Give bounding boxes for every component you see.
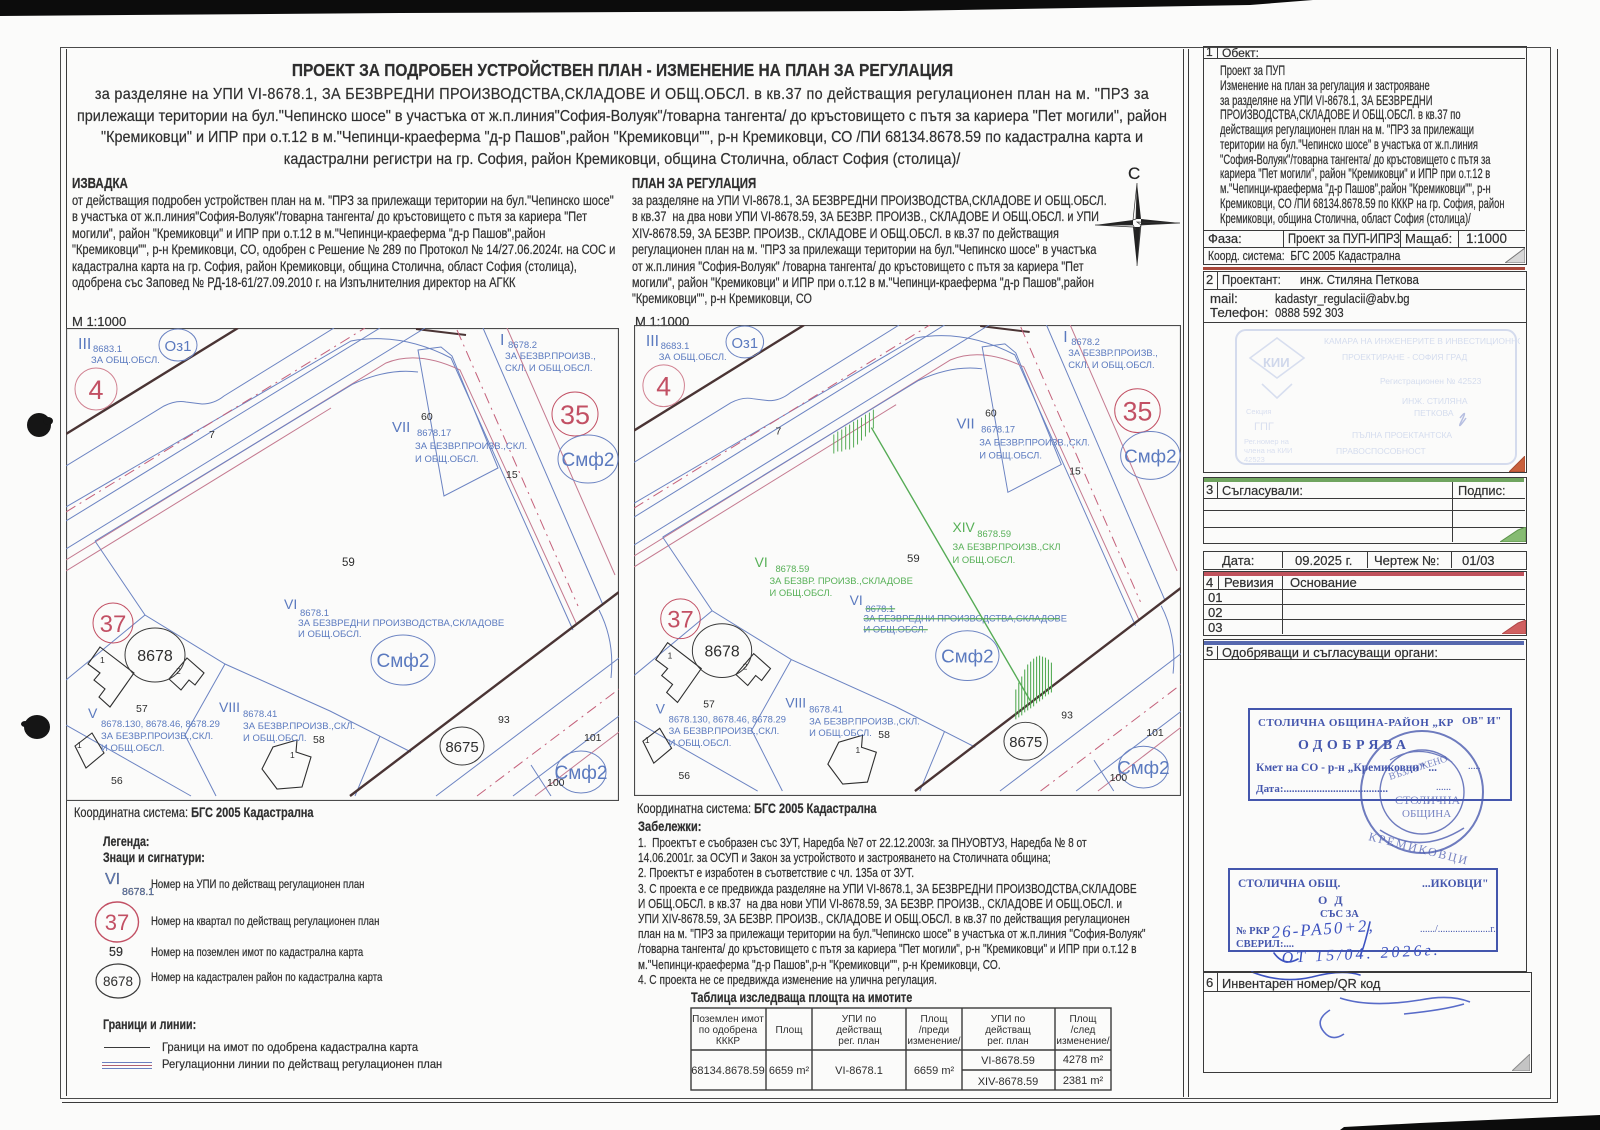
svg-text:/след: /след	[1071, 1025, 1096, 1036]
svg-text:Дата:.........................: Дата:...................................…	[1256, 783, 1388, 795]
svg-text:VI-8678.59: VI-8678.59	[981, 1055, 1035, 1067]
svg-text:......: ......	[1436, 782, 1451, 793]
svg-text:действащ: действащ	[985, 1025, 1031, 1036]
svg-text:ОВ" И": ОВ" И"	[1462, 715, 1501, 727]
svg-text:Рег.номер на: Рег.номер на	[1244, 437, 1290, 446]
svg-text:4278 m²: 4278 m²	[1063, 1054, 1104, 1066]
svg-text:СТОЛИЧНА ОБЩ.: СТОЛИЧНА ОБЩ.	[1238, 878, 1340, 890]
svg-text:по одобрена: по одобрена	[699, 1024, 758, 1036]
svg-text:О Д: О Д	[1318, 893, 1345, 907]
svg-text:УПИ по: УПИ по	[842, 1014, 877, 1025]
svg-text:....../.....................г.: ....../.....................г.	[1420, 924, 1496, 935]
svg-text:ЗА БЕЗВР. ПРОИЗВ.,СКЛАДОВЕ: ЗА БЕЗВР. ПРОИЗВ.,СКЛАДОВЕ	[770, 575, 913, 586]
svg-text:ПРАВОСПОСОБНОСТ: ПРАВОСПОСОБНОСТ	[1336, 446, 1426, 456]
svg-text:VI-8678.1: VI-8678.1	[835, 1065, 883, 1077]
svg-text:ЗА БЕЗВР.ПРОИЗВ.,СКЛ: ЗА БЕЗВР.ПРОИЗВ.,СКЛ	[953, 541, 1061, 552]
svg-text:6659 m²: 6659 m²	[769, 1065, 810, 1077]
svg-text:37: 37	[105, 910, 129, 935]
svg-text:8678.59: 8678.59	[977, 528, 1011, 539]
svg-text:ПЕТКОВА: ПЕТКОВА	[1414, 408, 1454, 418]
svg-text:КИИ: КИИ	[1263, 355, 1290, 370]
svg-text:ОБЩИНА: ОБЩИНА	[1402, 808, 1451, 820]
svg-text:/преди: /преди	[919, 1025, 950, 1036]
svg-text:6659 m²: 6659 m²	[914, 1065, 955, 1077]
svg-text:...ИКОВЦИ": ...ИКОВЦИ"	[1422, 878, 1489, 890]
svg-text:№ РКР: № РКР	[1236, 926, 1270, 937]
svg-text:И ОБЩ.ОБСЛ.: И ОБЩ.ОБСЛ.	[953, 554, 1016, 565]
svg-text:68134.8678.59: 68134.8678.59	[691, 1065, 764, 1077]
svg-text:КАМАРА НА ИНЖЕНЕРИТЕ В ИНВЕСТИ: КАМАРА НА ИНЖЕНЕРИТЕ В ИНВЕСТИЦИОННОТО	[1324, 336, 1520, 346]
svg-text:26-РА50+2,: 26-РА50+2,	[1271, 916, 1375, 942]
svg-text:ПЪЛНА ПРОЕКТАНТСКА: ПЪЛНА ПРОЕКТАНТСКА	[1352, 430, 1452, 440]
svg-text:ОДОБРЯВА: ОДОБРЯВА	[1298, 738, 1411, 753]
svg-text:изменение/: изменение/	[907, 1036, 960, 1047]
svg-text:ПРОЕКТИРАНЕ - СОФИЯ ГРАД: ПРОЕКТИРАНЕ - СОФИЯ ГРАД	[1342, 352, 1468, 362]
svg-text:КККР: КККР	[716, 1036, 740, 1047]
svg-text:Площ: Площ	[921, 1014, 948, 1025]
svg-text:Площ: Площ	[776, 1025, 803, 1036]
svg-text:XIV: XIV	[953, 519, 976, 535]
svg-text:члена на КИИ: члена на КИИ	[1244, 446, 1292, 455]
svg-text:ИНЖ. СТИЛЯНА: ИНЖ. СТИЛЯНА	[1402, 396, 1468, 406]
svg-text:Регистрационен № 42523: Регистрационен № 42523	[1380, 376, 1482, 386]
svg-text:рег. план: рег. план	[987, 1036, 1028, 1047]
svg-text:изменение/: изменение/	[1056, 1036, 1109, 1047]
svg-text:И ОБЩ.ОБСЛ.: И ОБЩ.ОБСЛ.	[770, 587, 833, 598]
svg-text:рег. план: рег. план	[838, 1036, 879, 1047]
svg-text:42523: 42523	[1244, 455, 1265, 464]
svg-text:XIV-8678.59: XIV-8678.59	[978, 1076, 1039, 1088]
svg-text:2381 m²: 2381 m²	[1063, 1075, 1104, 1087]
svg-text:VI: VI	[755, 554, 768, 570]
svg-text:Площ: Площ	[1070, 1014, 1097, 1025]
svg-text:8678: 8678	[103, 974, 133, 989]
svg-text:действащ: действащ	[836, 1025, 882, 1036]
svg-text:Секция: Секция	[1246, 407, 1271, 416]
svg-text:СТОЛИЧНА ОБЩИНА-РАЙОН „КР: СТОЛИЧНА ОБЩИНА-РАЙОН „КР	[1258, 717, 1454, 729]
svg-text:СТОЛИЧНА: СТОЛИЧНА	[1395, 793, 1461, 807]
svg-text:ГПГ: ГПГ	[1254, 421, 1274, 433]
svg-text:УПИ по: УПИ по	[991, 1014, 1026, 1025]
svg-text:8678.59: 8678.59	[775, 563, 809, 574]
svg-text:Поземлен имот: Поземлен имот	[692, 1014, 764, 1025]
